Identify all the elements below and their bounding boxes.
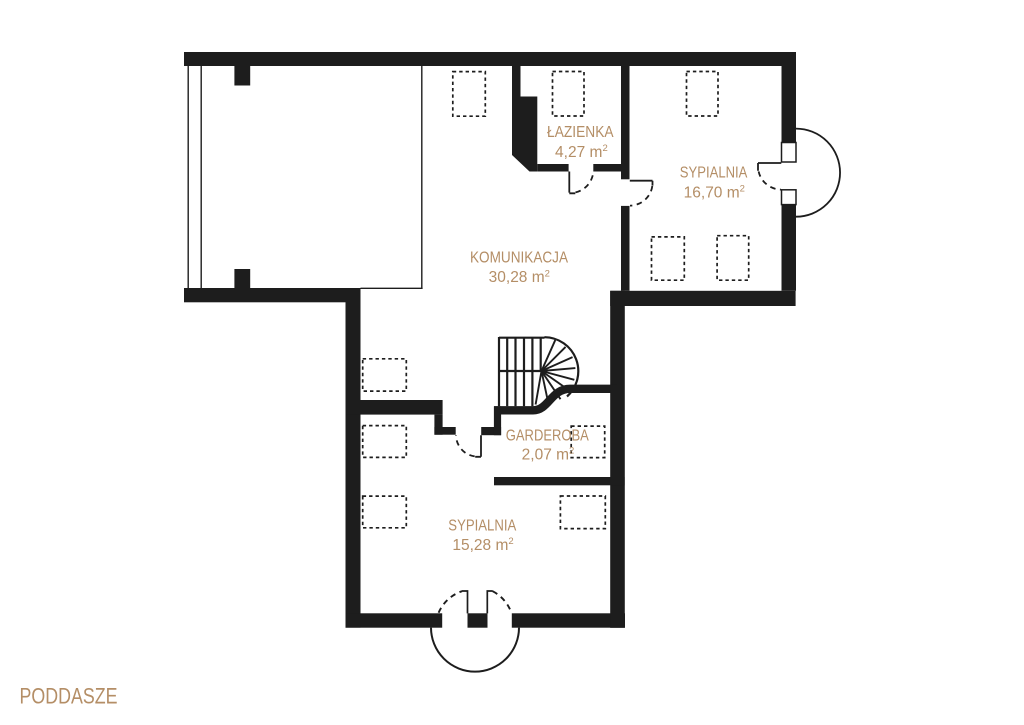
svg-text:SYPIALNIA: SYPIALNIA (448, 517, 517, 534)
svg-text:ŁAZIENKA: ŁAZIENKA (547, 124, 614, 141)
svg-text:16,70 m2: 16,70 m2 (684, 184, 745, 202)
svg-text:30,28 m2: 30,28 m2 (489, 268, 550, 286)
svg-text:GARDEROBA: GARDEROBA (506, 427, 590, 444)
svg-text:SYPIALNIA: SYPIALNIA (680, 164, 748, 181)
svg-text:4,27 m2: 4,27 m2 (555, 143, 608, 161)
svg-text:KOMUNIKACJA: KOMUNIKACJA (470, 250, 569, 267)
svg-text:15,28 m2: 15,28 m2 (452, 536, 513, 554)
svg-text:PODDASZE: PODDASZE (20, 684, 118, 709)
svg-text:2,07 m2: 2,07 m2 (522, 446, 575, 464)
